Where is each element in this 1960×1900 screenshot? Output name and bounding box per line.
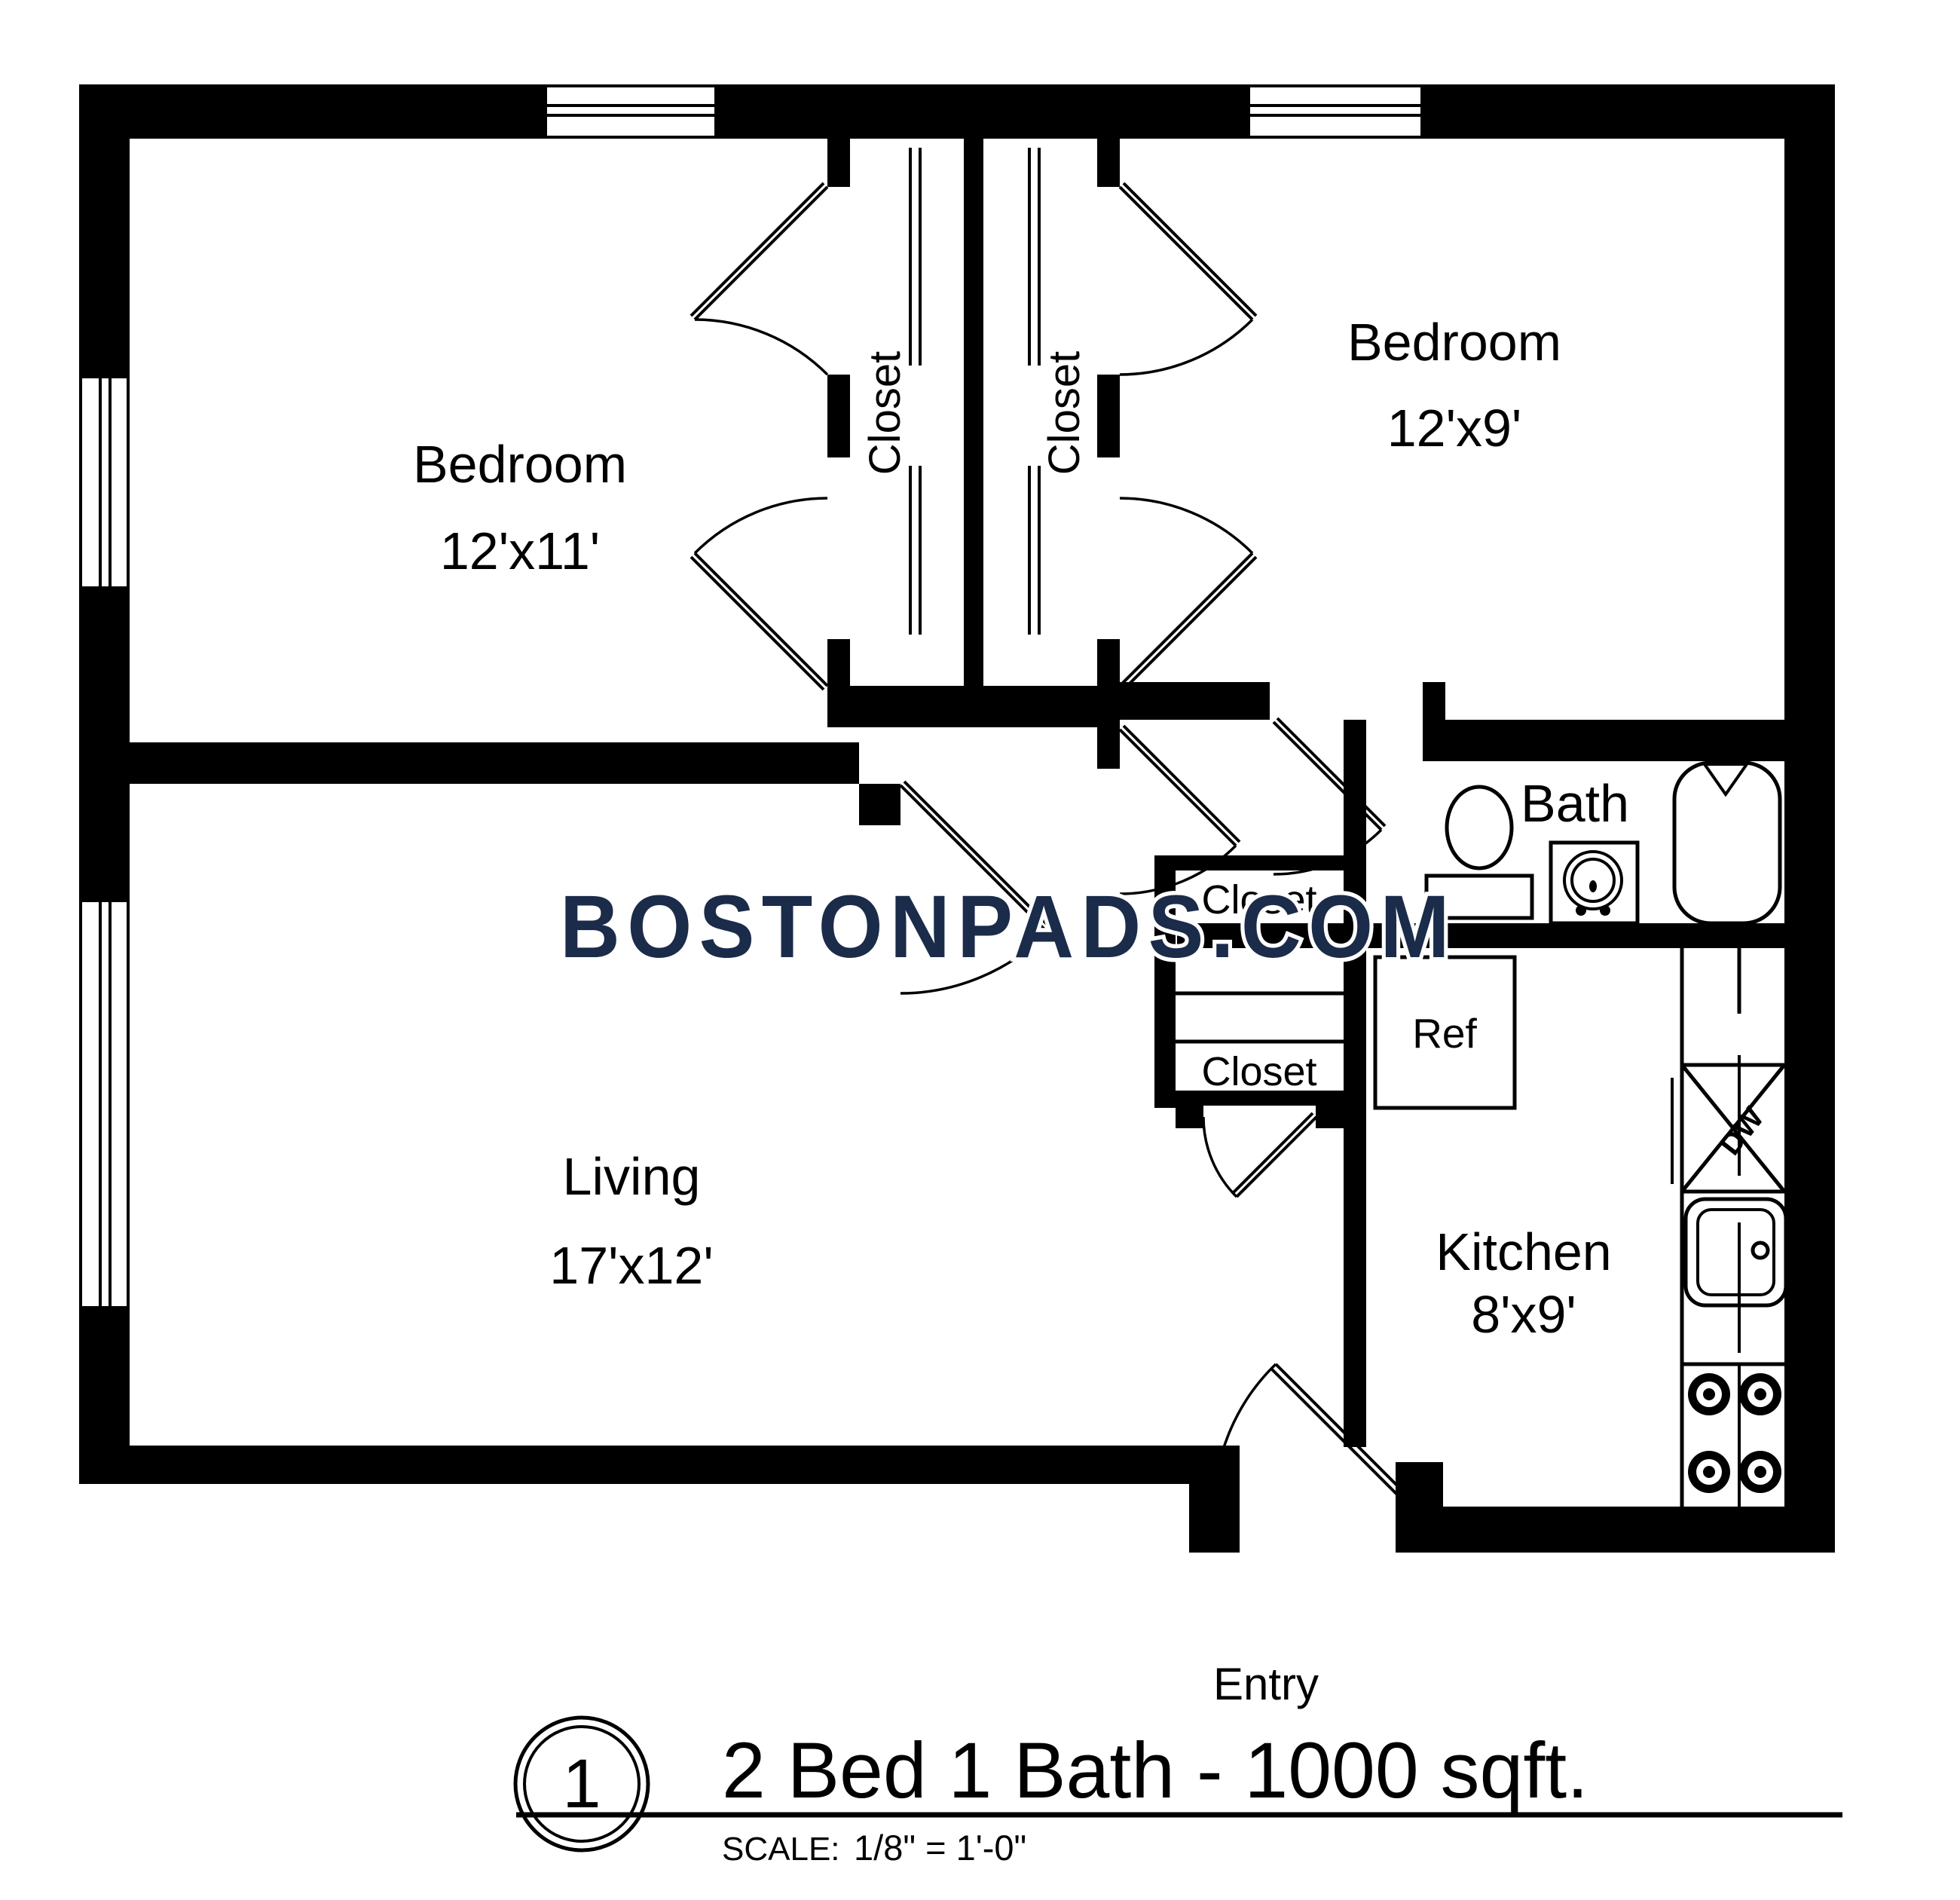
living-dims-label: 17'x12' — [549, 1236, 713, 1295]
title-block: 1 2 Bed 1 Bath - 1000 sqft. SCALE: 1/8" … — [515, 1718, 1842, 1868]
closet2-doors — [1120, 183, 1256, 690]
bedroom2-door-jamb — [1097, 727, 1120, 769]
living-name-label: Living — [563, 1147, 701, 1206]
closet1-rod — [910, 148, 920, 635]
closet2-rod — [1029, 148, 1039, 635]
unit-number: 1 — [562, 1745, 601, 1822]
stove — [1682, 1364, 1784, 1507]
bedroom2-dims-label: 12'x9' — [1387, 399, 1522, 457]
closet1-doors — [691, 183, 827, 690]
closet1-wall-jamb-bottom — [827, 639, 850, 686]
hall-closet-door — [1203, 1113, 1316, 1197]
wall-right — [1784, 84, 1835, 1553]
bath-name-label: Bath — [1521, 774, 1629, 833]
kitchen-name-label: Kitchen — [1436, 1222, 1611, 1281]
burner — [1739, 1373, 1781, 1415]
window-left-bedroom1 — [81, 377, 128, 588]
hall-closet-lower-label: Closet — [1201, 1049, 1316, 1094]
wall-bath-joint — [1423, 682, 1445, 761]
kitchen-sink — [1686, 1199, 1786, 1353]
wall-kitchen-west — [1344, 720, 1366, 1447]
wall-bottom-kitchen — [1396, 1507, 1835, 1553]
bedroom2-name-label: Bedroom — [1347, 313, 1561, 372]
hall-closet-jamb-left — [1176, 1106, 1203, 1128]
closet2-label: Closet — [1040, 351, 1089, 475]
bathtub — [1674, 763, 1780, 923]
floorplan-page: Bedroom 12'x11' Bedroom 12'x9' Living 17… — [0, 0, 1960, 1900]
wall-bedroom1-door-jamb — [859, 784, 900, 825]
closet2-wall-jamb-bottom — [1097, 639, 1120, 686]
window-top-bedroom1 — [546, 86, 716, 137]
room-labels: Bedroom 12'x11' Bedroom 12'x9' Living 17… — [413, 313, 1771, 1709]
scale-label: SCALE: — [722, 1831, 840, 1868]
bostonpads-watermark: BOSTONPADS.COM — [560, 877, 1457, 977]
closet-bottom-wall — [827, 686, 1120, 727]
window-top-bedroom2 — [1249, 86, 1422, 137]
closet1-label: Closet — [861, 351, 910, 475]
burner — [1688, 1451, 1730, 1493]
hall-closet-shelves — [1176, 993, 1344, 1042]
closet2-wall-jamb-top — [1097, 139, 1120, 187]
closet1-wall-jamb-top — [827, 139, 850, 187]
closet2-wall-jamb-mid — [1097, 375, 1120, 457]
scale-value: 1/8" = 1'-0" — [854, 1828, 1026, 1868]
wall-top — [79, 84, 1835, 139]
closet1-wall-jamb-mid — [827, 375, 850, 457]
burner — [1739, 1451, 1781, 1493]
wall-bedroom2-bath — [1445, 720, 1835, 761]
burner — [1688, 1373, 1730, 1415]
wall-bath-north-a — [1120, 682, 1270, 720]
floorplan-drawing: Bedroom 12'x11' Bedroom 12'x9' Living 17… — [0, 0, 1960, 1900]
bedroom1-name-label: Bedroom — [413, 435, 627, 494]
plan-title: 2 Bed 1 Bath - 1000 sqft. — [722, 1727, 1588, 1815]
entry-label: Entry — [1213, 1659, 1319, 1709]
bathroom-sink — [1551, 843, 1637, 923]
wall-bottom-living — [79, 1446, 1240, 1484]
refrigerator-label: Ref — [1412, 1010, 1477, 1057]
kitchen-dims-label: 8'x9' — [1471, 1285, 1576, 1344]
dishwasher-label: DW — [1714, 1101, 1771, 1161]
bath-door — [1274, 718, 1385, 874]
entry-door — [1214, 1364, 1419, 1512]
hall-closet-jamb-right — [1316, 1106, 1344, 1128]
bedroom1-dims-label: 12'x11' — [440, 522, 600, 580]
window-left-living — [81, 901, 128, 1308]
closet-center-wall — [964, 139, 983, 686]
wall-bedroom1-living — [130, 742, 859, 784]
